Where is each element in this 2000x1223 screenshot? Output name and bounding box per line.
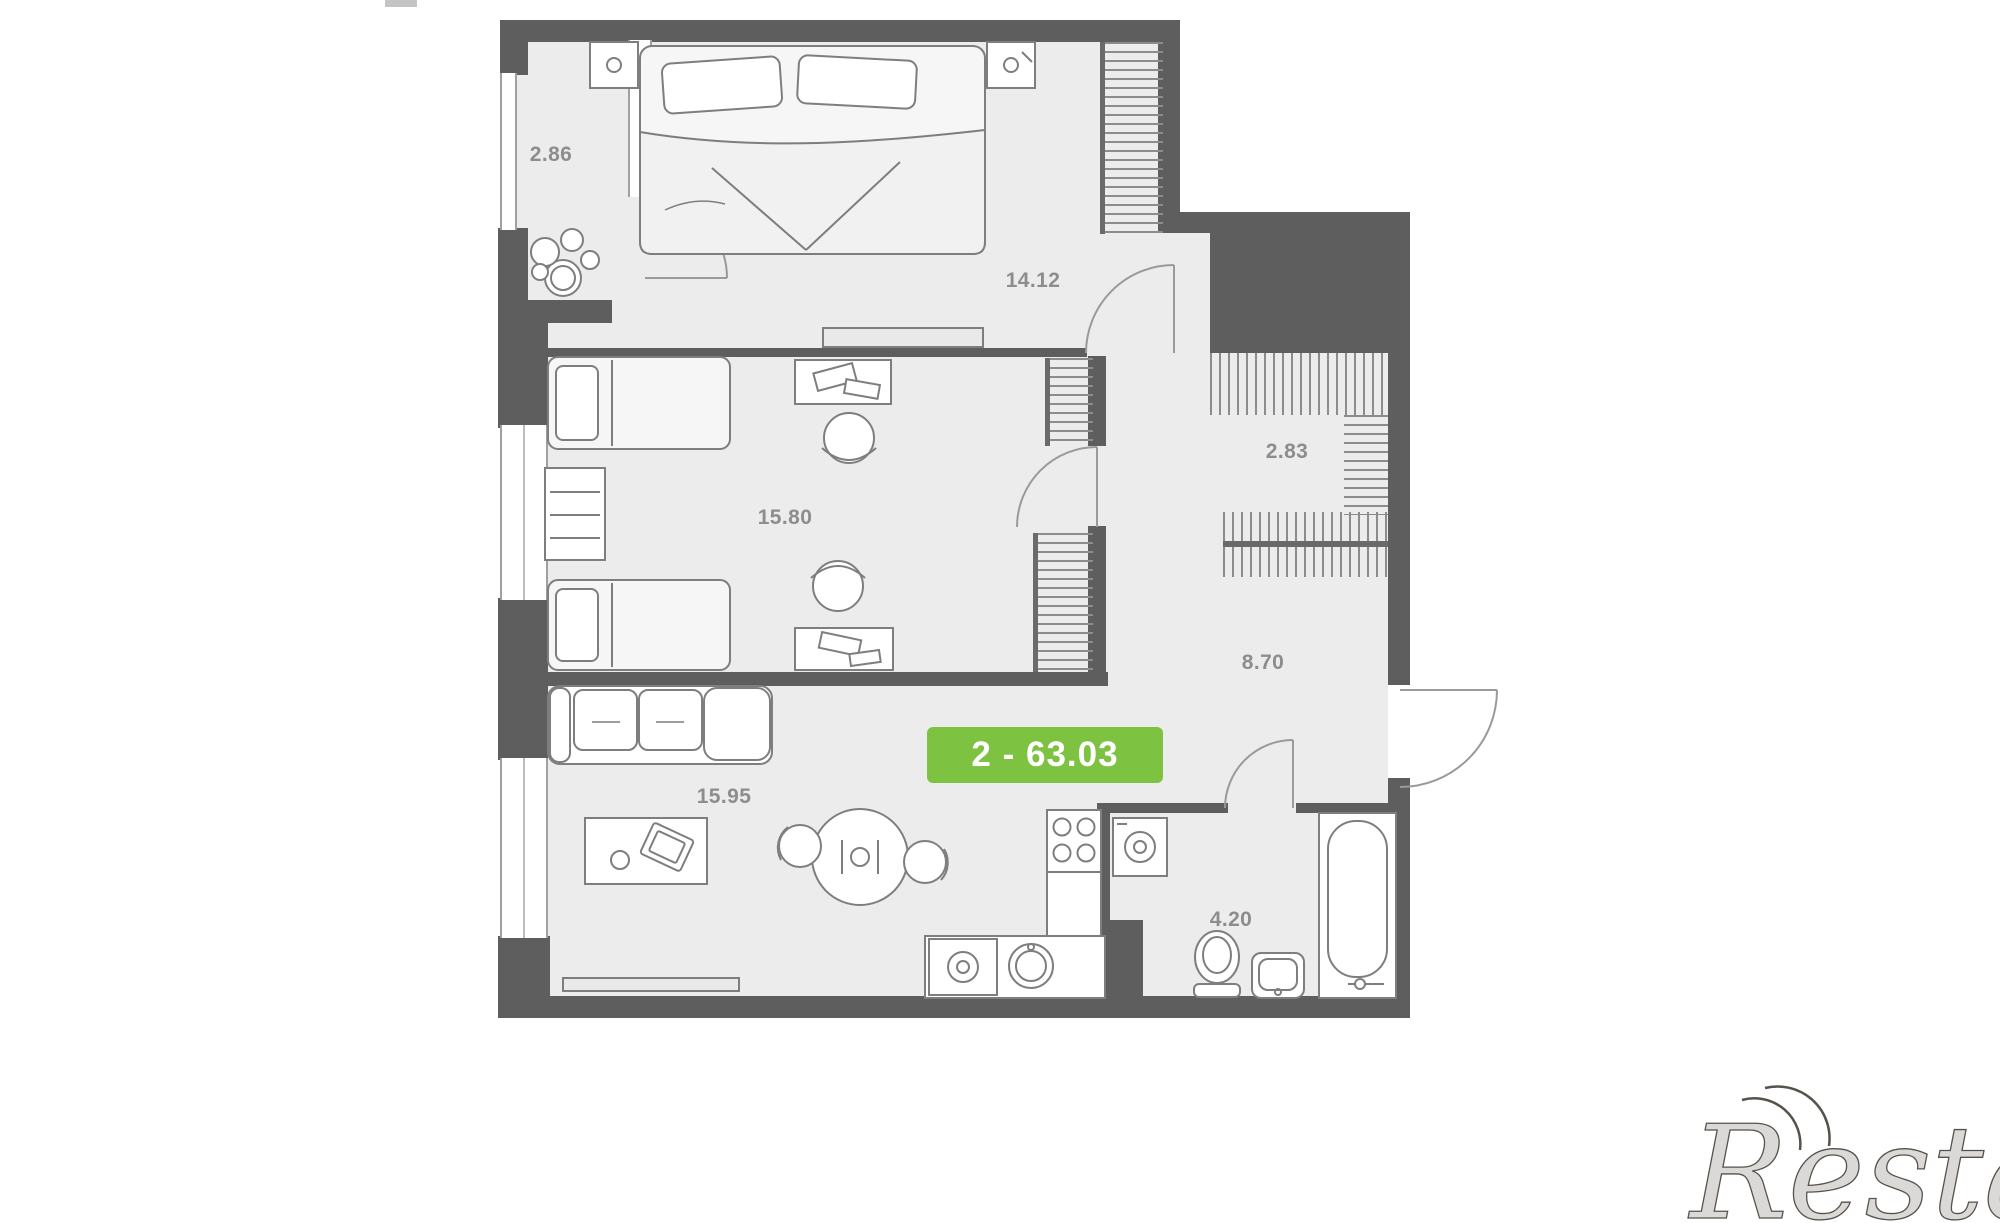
nightstand-icon [590, 42, 638, 88]
stove-icon [1047, 810, 1101, 872]
kids-room-door-arc [1017, 447, 1097, 527]
watermark-text: Restate [1690, 1108, 2000, 1223]
apartment-area-badge: 2 - 63.03 [927, 727, 1163, 783]
chair-icon [822, 413, 876, 463]
bathroom-door-arc [1225, 740, 1293, 808]
room-area-label-bedroom: 14.12 [1006, 269, 1061, 293]
bedroom-door-arc [1086, 265, 1174, 353]
single-bed-icon [548, 357, 730, 449]
bathroom-sink-icon [1252, 953, 1304, 998]
plant-icon [531, 229, 599, 296]
desk-icon [795, 628, 893, 670]
bedroom-tv-console-icon [823, 328, 983, 347]
chair-icon [904, 841, 948, 883]
room-area-label-balcony: 2.86 [530, 143, 572, 167]
washing-machine-icon [1113, 818, 1167, 876]
toilet-icon [1194, 931, 1240, 997]
sofa-icon [548, 686, 772, 764]
double-bed-icon [640, 46, 985, 254]
furniture-layer [0, 0, 2000, 1223]
chair-icon [778, 825, 821, 867]
washing-machine-icon [929, 939, 997, 995]
living-tv-console-icon [563, 978, 739, 991]
dresser-icon [545, 468, 605, 560]
single-bed-icon [548, 580, 730, 670]
bathtub-icon [1319, 813, 1396, 998]
room-area-label-living-kitchen: 15.95 [697, 785, 752, 809]
room-area-label-kids-room: 15.80 [758, 506, 813, 530]
room-area-label-bathroom: 4.20 [1210, 908, 1252, 932]
desk-icon [795, 360, 891, 404]
floor-plan-canvas: 2.86 14.12 15.80 2.83 8.70 15.95 4.20 2 … [0, 0, 2000, 1223]
room-area-label-wardrobe: 2.83 [1266, 440, 1308, 464]
entrance-door-arc [1400, 690, 1497, 787]
nightstand-icon [987, 42, 1035, 88]
round-sink-icon [1009, 944, 1053, 988]
chair-icon [811, 561, 865, 611]
coffee-table-icon [585, 818, 707, 884]
dining-table-icon [812, 809, 908, 905]
room-area-label-hallway: 8.70 [1242, 651, 1284, 675]
